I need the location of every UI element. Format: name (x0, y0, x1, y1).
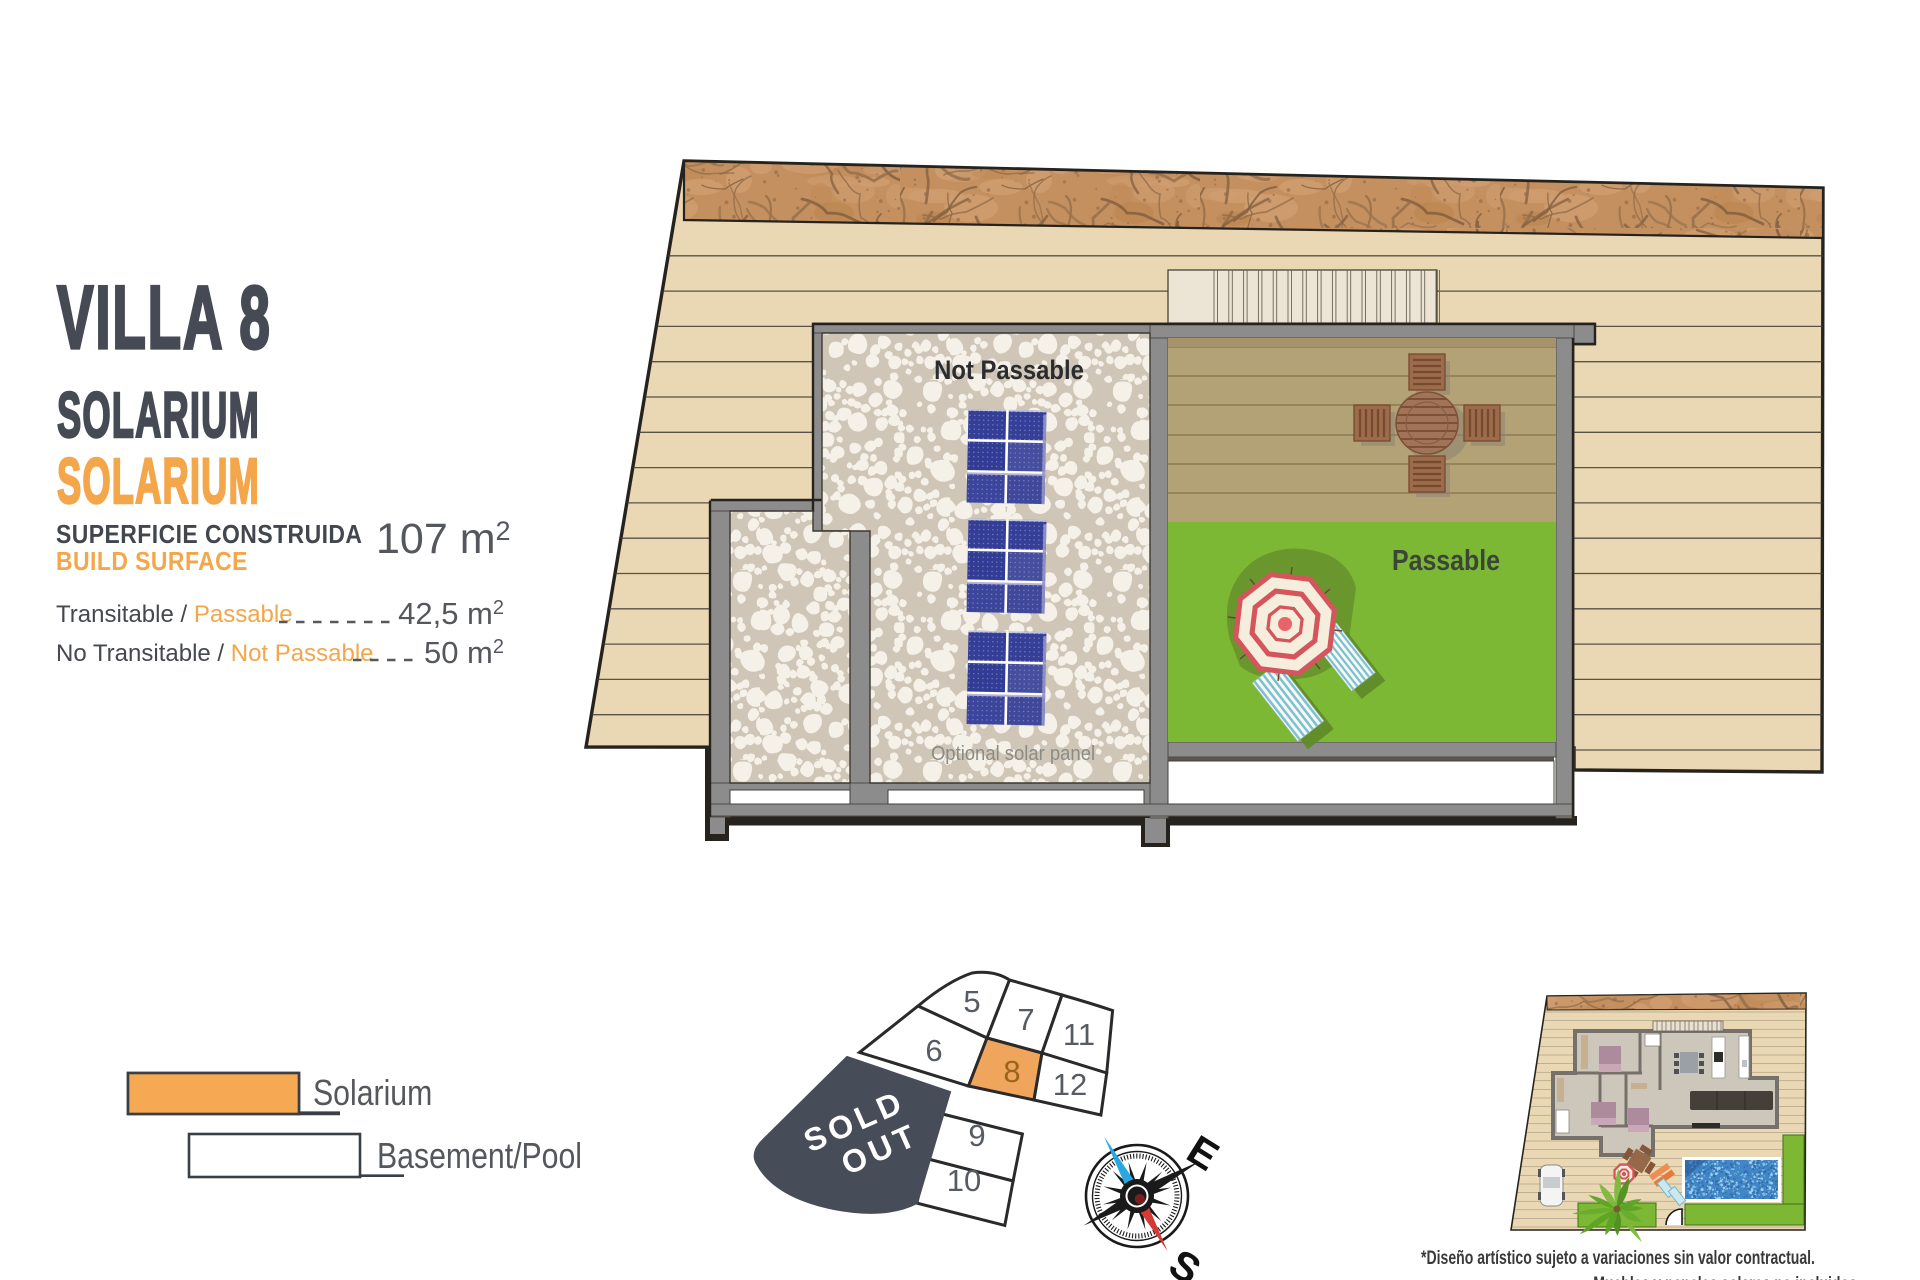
svg-text:7: 7 (1017, 1002, 1034, 1037)
svg-text:Solarium: Solarium (313, 1074, 432, 1114)
svg-text:50 m2: 50 m2 (424, 635, 504, 670)
svg-text:Not Passable: Not Passable (934, 356, 1084, 385)
svg-text:VILLA 8: VILLA 8 (57, 267, 272, 367)
svg-text:8: 8 (1003, 1054, 1020, 1089)
svg-text:Passable: Passable (1392, 544, 1500, 576)
svg-text:SUPERFICIE CONSTRUIDA: SUPERFICIE CONSTRUIDA (56, 521, 362, 549)
svg-text:42,5 m2: 42,5 m2 (398, 596, 504, 631)
svg-text:107 m2: 107 m2 (376, 515, 511, 563)
svg-text:12: 12 (1053, 1067, 1087, 1102)
svg-text:6: 6 (925, 1033, 942, 1068)
svg-text:9: 9 (968, 1118, 985, 1153)
svg-text:No Transitable / Not Passable: No Transitable / Not Passable (56, 640, 374, 667)
svg-text:Muebles y paneles solares no i: Muebles y paneles solares no incluidos. (1593, 1273, 1861, 1280)
svg-text:11: 11 (1063, 1017, 1095, 1052)
svg-text:Basement/Pool: Basement/Pool (377, 1137, 582, 1177)
svg-text:5: 5 (963, 984, 980, 1019)
svg-text:SOLARIUM: SOLARIUM (57, 380, 260, 451)
svg-text:10: 10 (947, 1163, 981, 1198)
svg-text:BUILD SURFACE: BUILD SURFACE (56, 548, 248, 576)
svg-text:*Diseño artístico sujeto a var: *Diseño artístico sujeto a variaciones s… (1421, 1247, 1815, 1269)
svg-text:Transitable / Passable: Transitable / Passable (56, 601, 293, 628)
svg-text:SOLARIUM: SOLARIUM (57, 446, 260, 517)
svg-text:Optional solar panel: Optional solar panel (931, 742, 1095, 765)
